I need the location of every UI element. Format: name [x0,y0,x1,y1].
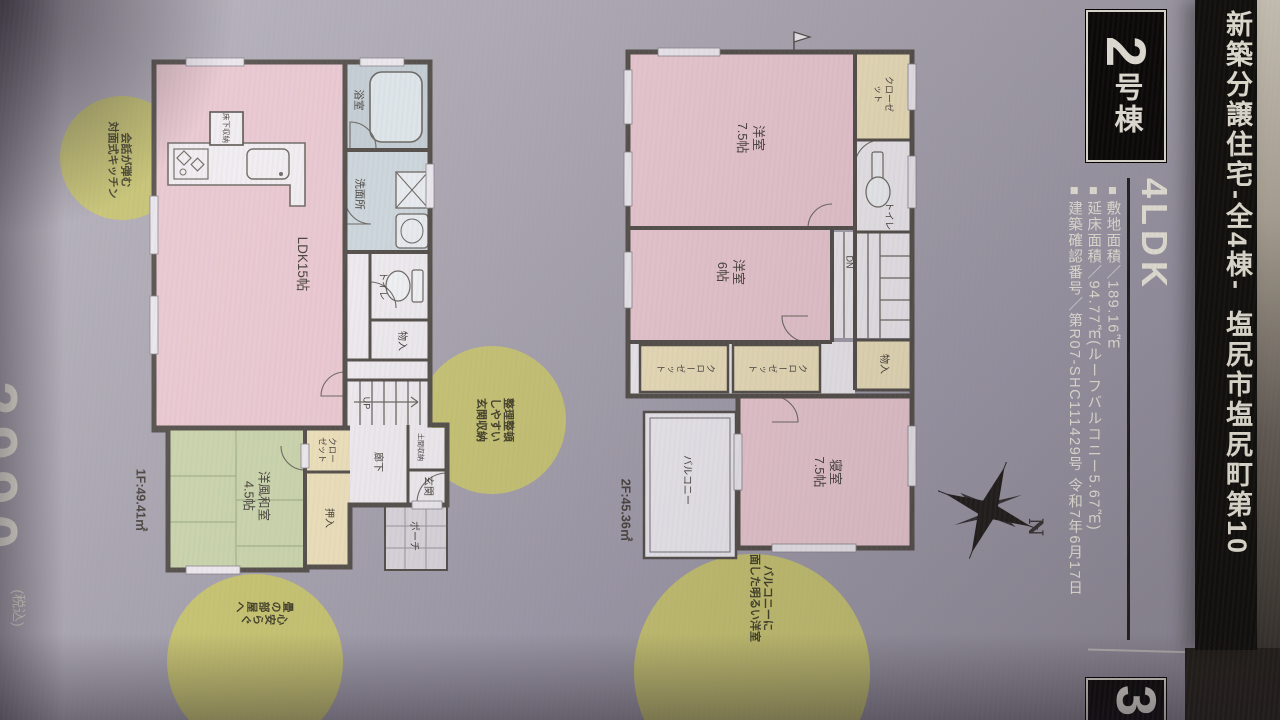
spec-floor-area: ■延床面積／94.77㎡(ルーフバルコニー5.67㎡) [1083,183,1102,657]
banner-location: 塩尻市塩尻町第10 [1222,310,1252,556]
unit-number-badge: 2号棟 [1086,10,1166,162]
flyer-photo: 会話が弾む 対面式キッチン 整理整頓 しやすい 玄関収納 心安らぐ 畳の部屋へ … [0,0,1280,720]
unit-number: 2 [1098,36,1154,67]
spec-permit: ■建築確認番号／第R07-SHC111429号 令和7年6月17日 [1064,183,1083,657]
photo-corner-dark [1185,648,1280,720]
washer [396,172,428,208]
title-banner: 新築分譲住宅-全4棟-塩尻市塩尻町第10 [1195,0,1257,650]
floor-storage-box [210,112,243,145]
property-specs: ■敷地面積／189.16㎡ ■延床面積／94.77㎡(ルーフバルコニー5.67㎡… [1064,183,1121,657]
floorplan-1f: LDK15帖 洋風和室 4.5帖 浴室 洗面所 トイレ 物入 UP クロー ゼッ… [150,56,458,574]
vanity-sink [396,214,428,248]
unit-suffix: 号棟 [1105,72,1147,136]
spec-site-area: ■敷地面積／189.16㎡ [1102,183,1121,657]
banner-title: 新築分譲住宅-全4棟- [1222,10,1252,292]
next-unit-badge: 3 [1086,678,1166,720]
toilet-1f [386,270,423,302]
floorplan-1f-drawing [150,56,458,574]
layout-type-heading: 4LDK [1133,178,1175,292]
bathtub [370,72,422,142]
compass-rose [938,462,1038,562]
floorplan-2f: 洋室 7.5帖 クローゼット トイレ 洋室 6帖 DN 物入 クローゼット クロ… [622,44,920,568]
floorplan-2f-drawing [622,44,920,568]
screen-edge-strip [1256,0,1280,720]
heading-rule [1127,178,1130,640]
next-unit-number: 3 [1108,685,1164,716]
